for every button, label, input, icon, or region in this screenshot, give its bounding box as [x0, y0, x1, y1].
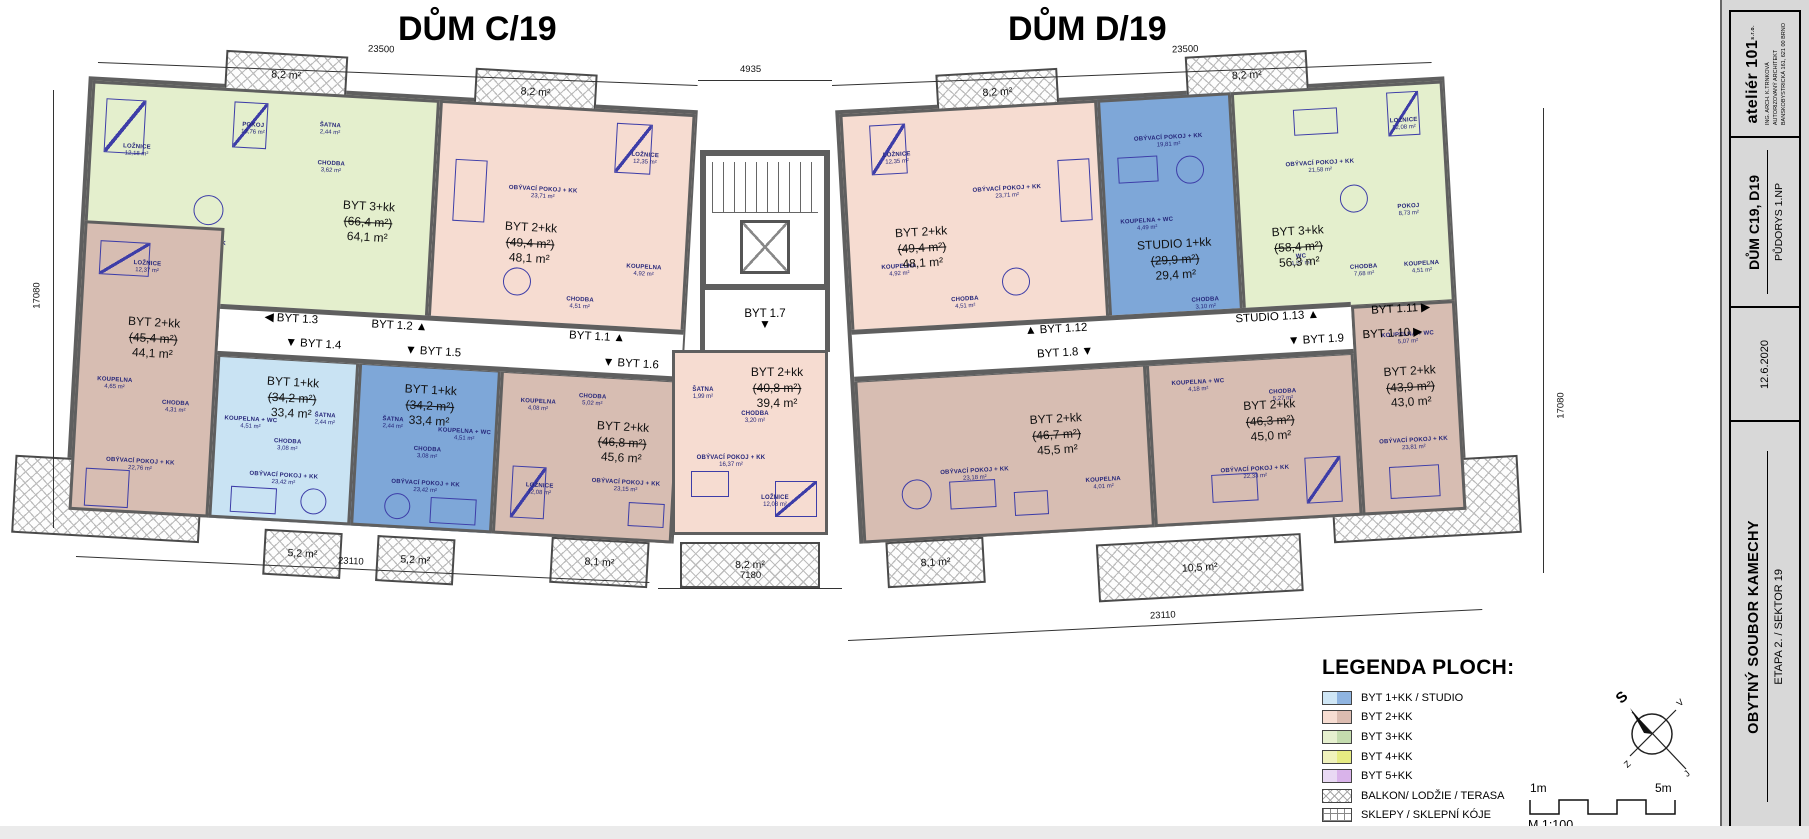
corridor-unit-name: BYT 1.8 [1037, 346, 1079, 360]
room-area: 8,73 m² [1398, 210, 1420, 218]
balcony: 10,5 m² [1096, 533, 1304, 602]
apartment-ctr-pink: ŠATNA1,99 m²CHODBA3,20 m²OBÝVACÍ POKOJ +… [672, 350, 828, 535]
furniture [1175, 155, 1205, 185]
room-area: 12,08 m² [525, 489, 553, 497]
apartment-c-lblue: KOUPELNA + WC4,51 m²ŠATNA2,44 m²CHODBA3,… [208, 354, 359, 526]
apartment-label: BYT 2+kk(40,8 m²)39,4 m² [751, 365, 803, 412]
firm-details: ING. ARCH. K.TRNKOVÁ AUTORIZOVANÝ ARCHIT… [1765, 23, 1787, 125]
room-area: 2,44 m² [319, 129, 341, 137]
room-label: OBÝVACÍ POKOJ + KK23,71 m² [972, 184, 1041, 202]
balcony: 5,2 m² [375, 535, 455, 585]
corridor-unit-name: BYT 1.2 [371, 318, 413, 332]
room-area: 13,76 m² [241, 129, 265, 137]
room-label: LOŽNICE12,08 m² [761, 495, 789, 509]
room-area: 1,99 m² [692, 394, 713, 401]
furniture [901, 479, 933, 511]
room-label: CHODBA3,20 m² [741, 411, 769, 425]
apartment-label: BYT 2+kk(46,7 m²)45,5 m² [1029, 410, 1084, 460]
legend-label: BYT 2+KK [1361, 711, 1412, 723]
legend-title: LEGENDA PLOCH: [1322, 656, 1514, 680]
furniture [949, 479, 996, 510]
legend-swatch [1322, 730, 1352, 744]
apartment-label-line: 29,4 m² [1138, 266, 1213, 286]
room-label: POKOJ13,76 m² [241, 122, 265, 137]
legend-item: BALKON/ LODŽIE / TERASA [1322, 786, 1514, 806]
furniture [1057, 158, 1092, 222]
apartment-label-line: (40,8 m²) [751, 381, 803, 397]
furniture [300, 488, 327, 515]
room-label: CHODBA5,02 m² [578, 393, 606, 408]
room-label: ŠATNA2,44 m² [382, 416, 404, 431]
balcony: 8,2 m² [680, 542, 820, 588]
furniture [429, 497, 476, 526]
apartment-label: BYT 2+kk(45,4 m²)44,1 m² [126, 314, 181, 364]
furniture [614, 123, 653, 175]
page-title-left: DŮM C/19 [398, 10, 557, 49]
entrance-arrow-icon: ▼ [602, 358, 614, 368]
room-label: OBÝVACÍ POKOJ + KK23,81 m² [1379, 436, 1448, 454]
scale-right-label: 5m [1655, 781, 1672, 795]
apartment-d-tan2: KOUPELNA + WC4,18 m²CHODBA5,27 m²OBÝVACÍ… [1146, 352, 1363, 527]
balcony-area: 8,2 m² [520, 85, 550, 99]
corridor-unit-name: BYT 1.5 [419, 345, 461, 359]
elevator-icon [740, 220, 790, 274]
drawing-title: PŮDORYS 1.NP [1773, 183, 1785, 261]
room-name: OBÝVACÍ POKOJ + KK [697, 455, 766, 462]
room-label: OBÝVACÍ POKOJ + KK22,33 m² [1220, 465, 1289, 483]
apartment-c-brown1: LOŽNICE12,37 m²KOUPELNA4,65 m²CHODBA4,31… [69, 220, 225, 517]
room-name: ŠATNA [692, 387, 713, 394]
dimension-line [53, 90, 54, 528]
room-label: LOŽNICE12,37 m² [133, 260, 161, 275]
entrance-arrow-icon: ▼ [759, 320, 771, 330]
furniture [1014, 490, 1049, 516]
balcony: 8,1 m² [885, 537, 985, 588]
room-label: OBÝVACÍ POKOJ + KK21,58 m² [1285, 158, 1354, 176]
room-label: ŠATNA1,99 m² [692, 387, 713, 401]
room-area: 12,18 m² [122, 150, 150, 158]
entrance-arrow-icon: ▶ [1413, 327, 1423, 337]
apartment-label: BYT 1+kk(34,2 m²)33,4 m² [265, 374, 320, 424]
room-label: OBÝVACÍ POKOJ + KK23,15 m² [591, 478, 660, 496]
dimension-line [698, 80, 832, 81]
furniture [1117, 155, 1158, 183]
stairwell [700, 150, 830, 290]
apartment-c-dblue: ŠATNA2,44 m²KOUPELNA + WC4,51 m²CHODBA3,… [350, 362, 501, 534]
apartment-label: BYT 2+kk(46,3 m²)45,0 m² [1243, 396, 1298, 446]
entrance-arrow-icon: ▲ [1307, 310, 1319, 320]
dimension-label: 23110 [1150, 609, 1176, 621]
legend-item: BYT 5+KK [1322, 766, 1514, 786]
furniture [691, 471, 729, 497]
room-label: LOŽNICE12,35 m² [631, 152, 659, 167]
compass-south-label: J [1682, 768, 1692, 778]
apartment-label-line: 33,4 m² [403, 412, 456, 430]
room-area: 16,37 m² [697, 462, 766, 469]
dimension-label: 7180 [740, 570, 761, 581]
legend-label: BYT 5+KK [1361, 770, 1412, 782]
dimension-line [658, 588, 842, 589]
corridor-unit-label: BYT 1.7▼ [744, 308, 785, 330]
room-area: 12,08 m² [761, 502, 789, 509]
compass-west-label: Z [1622, 758, 1633, 769]
entrance-arrow-icon: ▼ [405, 346, 417, 356]
apartment-d-green: OBÝVACÍ POKOJ + KK21,58 m²LOŽNICE12,08 m… [1231, 80, 1455, 313]
dimension-label: 17080 [1556, 392, 1567, 418]
room-label: OBÝVACÍ POKOJ + KK23,71 m² [508, 185, 577, 203]
apartment-label-line: 45,5 m² [1031, 441, 1084, 459]
room-label: OBÝVACÍ POKOJ + KK23,42 m² [249, 471, 318, 489]
dimension-label: 4935 [740, 64, 761, 75]
apartment-label-line: 56,3 m² [1273, 253, 1326, 271]
legend-swatch [1322, 750, 1352, 764]
divider [1767, 451, 1768, 803]
apartment-d-pink1: LOŽNICE12,35 m²OBÝVACÍ POKOJ + KK23,71 m… [839, 100, 1109, 336]
balcony-area: 8,2 m² [982, 85, 1012, 99]
phase-title: ETAPA 2. / SEKTOR 19 [1773, 569, 1785, 685]
legend-swatch [1322, 789, 1352, 803]
room-label: POKOJ8,73 m² [1397, 203, 1420, 218]
room-area: 4,51 m² [951, 303, 979, 311]
apartment-label-line: 48,1 m² [896, 254, 949, 272]
balcony-area: 8,1 m² [920, 556, 950, 570]
legend-item: BYT 1+KK / STUDIO [1322, 688, 1514, 708]
firm-suffix: s.r.o. [1750, 25, 1756, 40]
firm-line-1: ING. ARCH. K.TRNKOVÁ [1765, 23, 1771, 125]
room-label: LOŽNICE12,08 m² [1390, 117, 1418, 132]
room-area: 7,68 m² [1350, 270, 1378, 278]
scale-bar: 1m 5m [1524, 780, 1694, 822]
legend-label: BYT 3+KK [1361, 731, 1412, 743]
entrance-arrow-icon: ▲ [613, 333, 625, 343]
apartment-label-line: 43,0 m² [1385, 393, 1438, 411]
legend-label: BALKON/ LODŽIE / TERASA [1361, 790, 1504, 802]
room-label: LOŽNICE12,08 m² [525, 482, 553, 497]
titleblock-project-box: DŮM C19, D19 PŮDORYS 1.NP [1729, 136, 1801, 308]
dimension-label: 23500 [368, 43, 395, 55]
balcony-area: 8,2 m² [1232, 69, 1262, 83]
project-title: DŮM C19, D19 [1746, 175, 1762, 270]
firm-name: ateliér 101s.r.o. [1744, 25, 1762, 123]
apartment-label-line: 39,4 m² [751, 396, 803, 412]
legend-item: BYT 3+KK [1322, 727, 1514, 747]
room-label: LOŽNICE12,35 m² [883, 151, 911, 166]
room-label: KOUPELNA4,08 m² [520, 398, 556, 414]
room-area: 5,02 m² [578, 400, 606, 408]
room-area: 3,08 m² [273, 445, 301, 453]
room-label: KOUPELNA4,51 m² [1404, 260, 1440, 276]
apartment-label-line: 45,6 m² [595, 449, 648, 467]
apartment-label: BYT 2+kk(49,4 m²)48,1 m² [895, 223, 950, 273]
room-area: 3,62 m² [317, 167, 345, 175]
entrance-arrow-icon: ▼ [1081, 347, 1093, 357]
apartment-label-line: 44,1 m² [126, 345, 179, 363]
wing-right: LOŽNICE12,35 m²OBÝVACÍ POKOJ + KK23,71 m… [831, 72, 1475, 561]
legend-label: SKLEPY / SKLEPNÍ KÓJE [1361, 809, 1491, 821]
furniture [1001, 267, 1031, 297]
room-area: 4,31 m² [161, 407, 189, 415]
room-label: ŠATNA2,44 m² [319, 122, 341, 137]
legend: LEGENDA PLOCH: BYT 1+KK / STUDIOBYT 2+KK… [1322, 656, 1514, 825]
legend-swatch [1322, 808, 1352, 822]
apartment-label: BYT 1+kk(34,2 m²)33,4 m² [403, 381, 458, 431]
room-label: KOUPELNA4,01 m² [1085, 476, 1121, 492]
entrance-arrow-icon: ▼ [285, 338, 297, 348]
titleblock-date-box: 12.6.2020 [1729, 306, 1801, 422]
room-area: 3,08 m² [413, 453, 441, 461]
room-label: CHODBA4,31 m² [161, 400, 189, 415]
site-title: OBYTNÝ SOUBOR KAMECHY [1746, 520, 1762, 734]
legend-item: BYT 2+KK [1322, 708, 1514, 728]
room-area: 2,44 m² [314, 419, 336, 427]
compass-icon: S V Z J [1606, 688, 1698, 780]
room-label: OBÝVACÍ POKOJ + KK16,37 m² [697, 455, 766, 469]
room-label: CHODBA4,51 m² [951, 296, 979, 311]
furniture [84, 468, 130, 508]
room-label: OBÝVACÍ POKOJ + KK23,18 m² [940, 466, 1009, 484]
dimension-line [1543, 108, 1544, 573]
apartment-label-line: 64,1 m² [341, 229, 394, 247]
room-label: CHODBA3,08 m² [273, 438, 301, 453]
apartment-label: BYT 3+kk(58,4 m²)56,3 m² [1271, 222, 1326, 272]
room-label: KOUPELNA + WC4,49 m² [1120, 217, 1174, 234]
room-label: KOUPELNA + WC4,18 m² [1171, 378, 1225, 395]
legend-item: SKLEPY / SKLEPNÍ KÓJE [1322, 806, 1514, 826]
wing-left: LOŽNICE12,18 m²POKOJ13,76 m²ŠATNA2,44 m²… [60, 72, 704, 561]
furniture [384, 492, 411, 519]
balcony-area: 5,2 m² [400, 553, 430, 567]
room-area: 12,35 m² [631, 159, 659, 167]
legend-swatch [1322, 691, 1352, 705]
bottom-strip [0, 826, 1809, 839]
compass-north-label: S [1612, 688, 1631, 707]
furniture [869, 124, 908, 176]
room-label: OBÝVACÍ POKOJ + KK19,81 m² [1134, 133, 1203, 151]
entrance-arrow-icon: ◀ [264, 313, 274, 323]
scale-left-label: 1m [1530, 781, 1547, 795]
apartment-c-tan1: KOUPELNA4,08 m²CHODBA5,02 m²LOŽNICE12,08… [492, 370, 681, 544]
apartment-d-studio: OBÝVACÍ POKOJ + KK19,81 m²KOUPELNA + WC4… [1097, 92, 1243, 321]
balcony-area: 10,5 m² [1182, 561, 1218, 575]
furniture [1304, 456, 1343, 504]
firm-line-3: BANSKOBYSTRICKÁ 161, 621 00 BRNO [1781, 23, 1787, 125]
furniture [452, 159, 487, 223]
legend-label: BYT 4+KK [1361, 751, 1412, 763]
room-label: KOUPELNA4,92 m² [626, 264, 662, 280]
legend-item: BYT 4+KK [1322, 747, 1514, 767]
room-label: LOŽNICE12,18 m² [122, 143, 150, 158]
room-area: 4,51 m² [566, 303, 594, 311]
balcony: 5,2 m² [262, 529, 342, 579]
entrance-arrow-icon: ▲ [415, 322, 427, 332]
dimension-label: 23110 [338, 555, 364, 567]
furniture [230, 486, 277, 515]
corridor-unit-name: BYT 1.1 [569, 329, 611, 343]
balcony-area: 8,1 m² [584, 556, 614, 570]
balcony-area: 5,2 m² [287, 547, 317, 561]
compass-east-label: V [1674, 697, 1685, 708]
apartment-label-line: 45,0 m² [1245, 427, 1298, 445]
dimension-label: 23500 [1172, 43, 1199, 55]
titleblock: ateliér 101s.r.o. ING. ARCH. K.TRNKOVÁ A… [1720, 0, 1809, 839]
room-name: LOŽNICE [761, 495, 789, 502]
apartment-label: BYT 3+kk(66,4 m²)64,1 m² [341, 198, 396, 248]
firm-line-2: AUTORIZOVANÝ ARCHITEKT [1773, 23, 1779, 125]
apartment-label-line: 48,1 m² [503, 250, 556, 268]
furniture [1293, 107, 1338, 135]
apartment-label-line: BYT 2+kk [751, 365, 803, 381]
furniture [1389, 464, 1441, 499]
room-area: 2,44 m² [382, 423, 404, 431]
apartment-label: BYT 2+kk(49,4 m²)48,1 m² [503, 219, 558, 269]
apartment-c-pink1: LOŽNICE12,35 m²OBÝVACÍ POKOJ + KK23,71 m… [428, 100, 696, 336]
room-label: CHODBA3,08 m² [413, 446, 441, 461]
entrance-arrow-icon: ▶ [1421, 303, 1431, 313]
stairs-icon [712, 162, 818, 213]
page-title-right: DŮM D/19 [1008, 10, 1167, 49]
apartment-label: BYT 2+kk(46,8 m²)45,6 m² [595, 418, 650, 468]
room-area: 3,20 m² [741, 418, 769, 425]
drawing-date: 12.6.2020 [1759, 340, 1771, 389]
furniture [502, 267, 532, 297]
legend-swatch [1322, 710, 1352, 724]
corridor-unit-name: BYT 1.4 [300, 337, 342, 351]
furniture [193, 194, 225, 226]
room-label: CHODBA3,62 m² [317, 160, 345, 175]
room-name: CHODBA [741, 411, 769, 418]
room-area: 12,37 m² [133, 267, 161, 275]
room-label: CHODBA4,51 m² [566, 296, 594, 311]
titleblock-firm-box: ateliér 101s.r.o. ING. ARCH. K.TRNKOVÁ A… [1729, 10, 1801, 138]
entrance-arrow-icon: ▼ [1288, 336, 1300, 346]
corridor-unit-name: BYT 1.3 [276, 312, 318, 326]
apartment-label-line: 33,4 m² [265, 405, 318, 423]
corridor-unit-name: BYT 1.9 [1302, 332, 1344, 346]
room-label: KOUPELNA4,65 m² [97, 376, 133, 392]
legend-swatch [1322, 769, 1352, 783]
titleblock-site-box: OBYTNÝ SOUBOR KAMECHY ETAPA 2. / SEKTOR … [1729, 420, 1801, 833]
legend-label: BYT 1+KK / STUDIO [1361, 692, 1463, 704]
apartment-label: BYT 2+kk(43,9 m²)43,0 m² [1383, 362, 1438, 412]
apartment-label: STUDIO 1+kk(29,9 m²)29,4 m² [1137, 235, 1214, 286]
furniture [1339, 184, 1369, 214]
room-label: CHODBA7,68 m² [1350, 263, 1378, 278]
corridor-unit-name: BYT 1.6 [617, 357, 659, 371]
dimension-label: 17080 [32, 282, 43, 308]
center-column: ŠATNA1,99 m²CHODBA3,20 m²OBÝVACÍ POKOJ +… [660, 150, 840, 586]
apartment-d-tan1: OBÝVACÍ POKOJ + KK23,18 m²KOUPELNA4,01 m… [854, 363, 1155, 543]
entrance-arrow-icon: ▲ [1025, 326, 1037, 336]
legend-items: BYT 1+KK / STUDIOBYT 2+KKBYT 3+KKBYT 4+K… [1322, 688, 1514, 825]
divider [1767, 150, 1768, 294]
